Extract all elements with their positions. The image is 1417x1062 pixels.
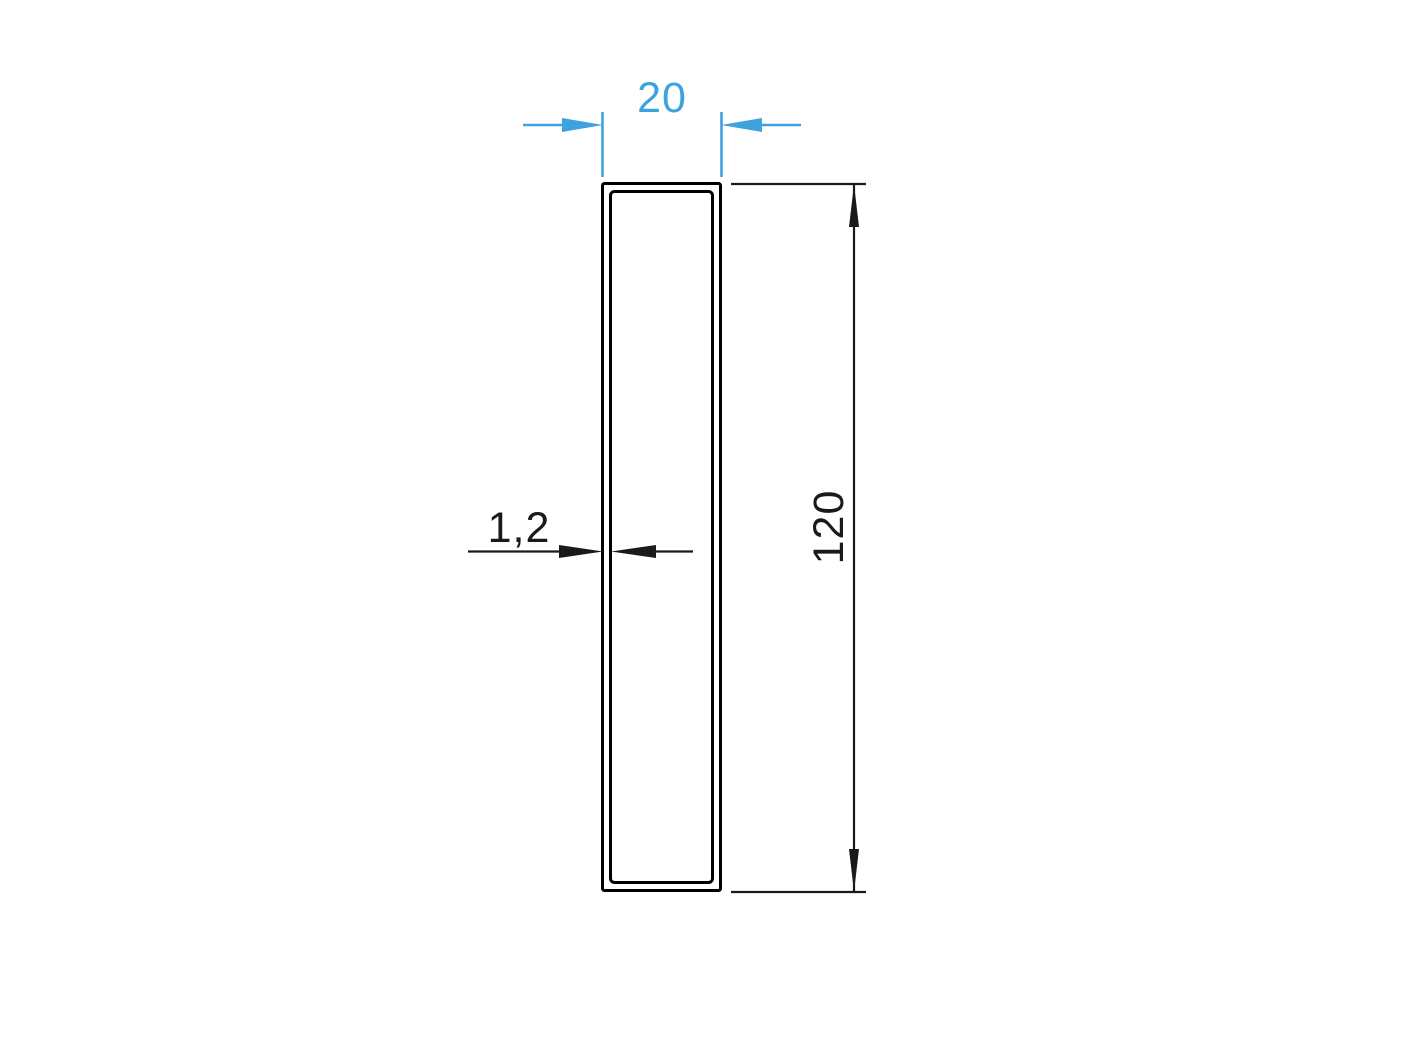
technical-drawing-canvas: 20 120 1,2 (0, 0, 1417, 1062)
profile-outer-contour (603, 184, 721, 891)
technical-drawing-page: 20 120 1,2 (0, 0, 1417, 1062)
wall-thickness-dimension: 1,2 (468, 504, 693, 558)
profile-inner-contour (611, 192, 713, 883)
wall-thickness-value: 1,2 (488, 504, 551, 552)
width-arrowhead-left-icon (562, 118, 603, 132)
width-dimension-value: 20 (637, 74, 687, 122)
height-dimension: 120 (731, 184, 866, 892)
wall-arrowhead-left-icon (611, 545, 656, 558)
height-arrowhead-down-icon (849, 849, 859, 892)
width-arrowhead-right-icon (721, 118, 762, 132)
height-arrowhead-up-icon (849, 184, 859, 227)
wall-arrowhead-right-icon (559, 545, 603, 558)
profile-cross-section (603, 184, 721, 891)
width-dimension: 20 (523, 74, 801, 177)
height-dimension-value: 120 (805, 490, 853, 565)
